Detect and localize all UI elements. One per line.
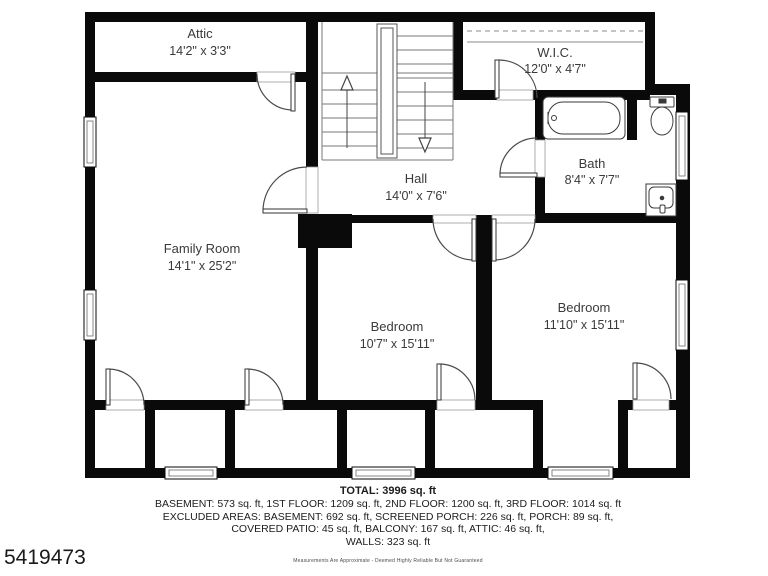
bathtub xyxy=(543,97,625,139)
room-name-family-room: Family Room xyxy=(164,241,241,256)
chimney xyxy=(298,214,352,248)
room-name-hall: Hall xyxy=(405,171,428,186)
room-name-bath: Bath xyxy=(579,156,606,171)
summary-line-excluded-2: COVERED PATIO: 45 sq. ft, BALCONY: 167 s… xyxy=(85,523,691,536)
summary-line-walls: WALLS: 323 sq. ft xyxy=(85,536,691,549)
area-summary: TOTAL: 3996 sq. ft BASEMENT: 573 sq. ft,… xyxy=(85,485,691,568)
summary-total: TOTAL: 3996 sq. ft xyxy=(85,485,691,498)
room-dims-bath: 8'4" x 7'7" xyxy=(565,173,620,187)
disclaimer: Measurements Are Approximate - Deemed Hi… xyxy=(85,555,691,568)
room-dims-bedroom-right: 11'10" x 15'11" xyxy=(544,318,625,332)
summary-line-floors: BASEMENT: 573 sq. ft, 1ST FLOOR: 1209 sq… xyxy=(85,498,691,511)
room-dims-wic: 12'0" x 4'7" xyxy=(524,62,586,76)
room-name-attic: Attic xyxy=(187,26,213,41)
room-dims-hall: 14'0" x 7'6" xyxy=(385,189,447,203)
room-name-wic: W.I.C. xyxy=(537,45,572,60)
room-name-bedroom-mid: Bedroom xyxy=(371,319,424,334)
room-dims-family-room: 14'1" x 25'2" xyxy=(168,259,237,273)
floorplan-page: Attic 14'2" x 3'3" W.I.C. 12'0" x 4'7" B… xyxy=(0,0,768,576)
sink xyxy=(646,184,676,216)
stairs-up-arrow xyxy=(341,76,353,148)
listing-id: 5419473 xyxy=(4,546,86,570)
room-dims-attic: 14'2" x 3'3" xyxy=(169,44,231,58)
room-name-bedroom-right: Bedroom xyxy=(558,300,611,315)
toilet xyxy=(650,97,674,135)
room-dims-bedroom-mid: 10'7" x 15'11" xyxy=(360,337,435,351)
summary-line-excluded: EXCLUDED AREAS: BASEMENT: 692 sq. ft, SC… xyxy=(85,511,691,524)
stairs xyxy=(322,22,453,160)
closet-rod-lines xyxy=(467,31,643,42)
